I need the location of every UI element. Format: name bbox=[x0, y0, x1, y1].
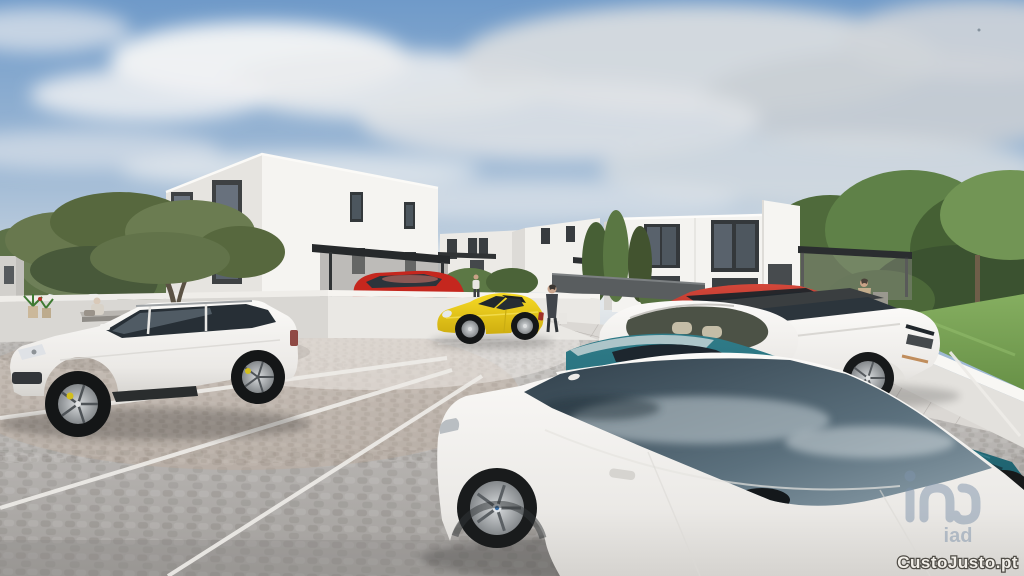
front-wheel bbox=[45, 371, 111, 437]
render-scene: iad CustoJusto.pt bbox=[0, 0, 1024, 576]
brake-caliper bbox=[245, 368, 251, 374]
front-intake bbox=[12, 372, 42, 384]
seat bbox=[702, 326, 722, 338]
window bbox=[541, 228, 550, 244]
real-estate-render-photo: iad CustoJusto.pt bbox=[0, 0, 1024, 576]
red-flower bbox=[38, 297, 42, 301]
taillight bbox=[290, 330, 298, 346]
shopping-bag bbox=[559, 313, 567, 324]
seat bbox=[672, 322, 692, 334]
car-shadow bbox=[430, 335, 554, 349]
iad-logo-text: iad bbox=[944, 525, 973, 547]
custojusto-watermark: CustoJusto.pt bbox=[897, 553, 1018, 572]
window bbox=[566, 226, 575, 242]
plant-pot bbox=[28, 306, 38, 318]
brake-caliper bbox=[67, 393, 74, 400]
side-mirror bbox=[100, 324, 110, 330]
rear-wheel bbox=[231, 350, 285, 404]
bird-speck bbox=[978, 29, 981, 32]
